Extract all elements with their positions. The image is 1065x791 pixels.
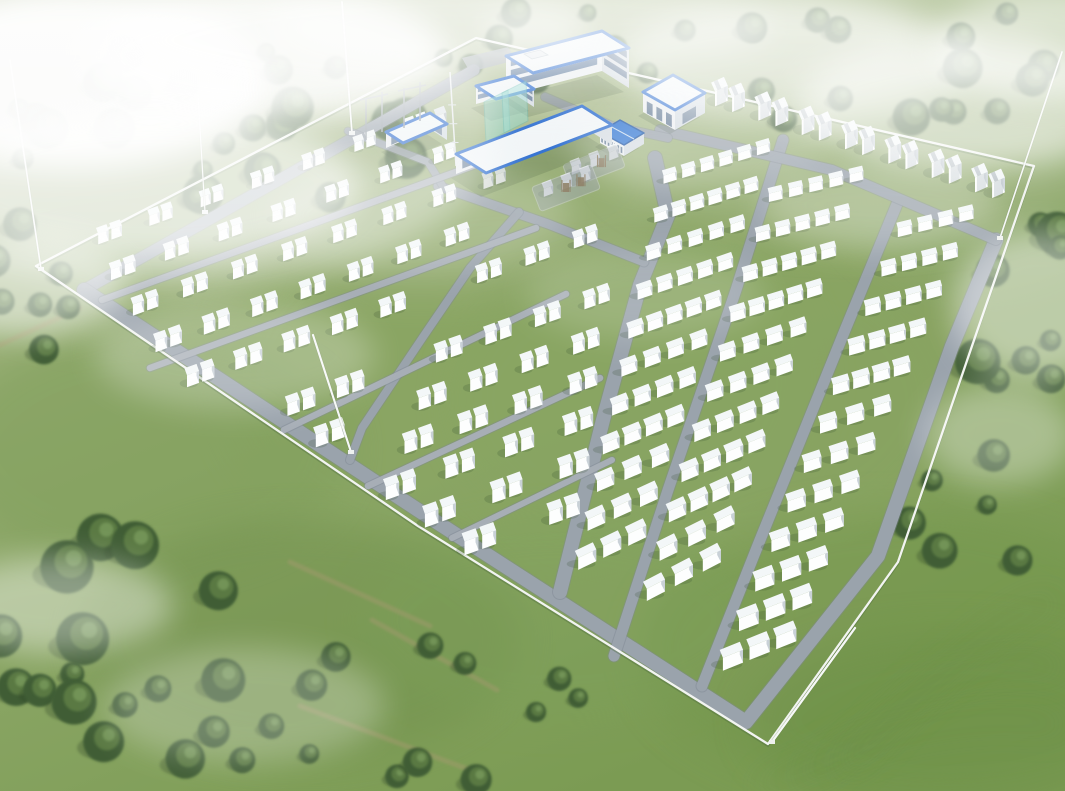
- tree-canopy-light: [578, 692, 584, 698]
- tree-canopy-light: [72, 666, 79, 673]
- tree-canopy-light: [931, 474, 938, 481]
- tree-canopy-light: [39, 680, 49, 690]
- tree-canopy-light: [1017, 551, 1026, 560]
- fog-cloud: [95, 300, 375, 410]
- tree-canopy-light: [103, 729, 115, 741]
- tree-canopy-light: [99, 522, 113, 536]
- tree-canopy-light: [73, 688, 87, 702]
- mast-base: [348, 450, 354, 454]
- tree-canopy-light: [430, 637, 438, 645]
- tree-canopy-light: [417, 753, 426, 762]
- mast-base: [769, 740, 775, 744]
- tree-canopy-light: [335, 648, 344, 657]
- tree-canopy-light: [464, 656, 471, 663]
- atmospheric-haze: [0, 0, 1065, 300]
- aerial-rendering-battery-storage-plant: [0, 0, 1065, 791]
- tree-canopy-light: [217, 578, 229, 590]
- tree-canopy-light: [536, 706, 542, 712]
- scene-svg: [0, 0, 1065, 791]
- tree-canopy-light: [134, 530, 148, 544]
- tree-canopy-light: [939, 539, 950, 550]
- tree-canopy-light: [475, 770, 484, 779]
- tree-canopy-light: [43, 340, 52, 349]
- fog-cloud: [105, 647, 385, 763]
- tree-canopy-light: [559, 671, 566, 678]
- tree-canopy-light: [987, 499, 993, 505]
